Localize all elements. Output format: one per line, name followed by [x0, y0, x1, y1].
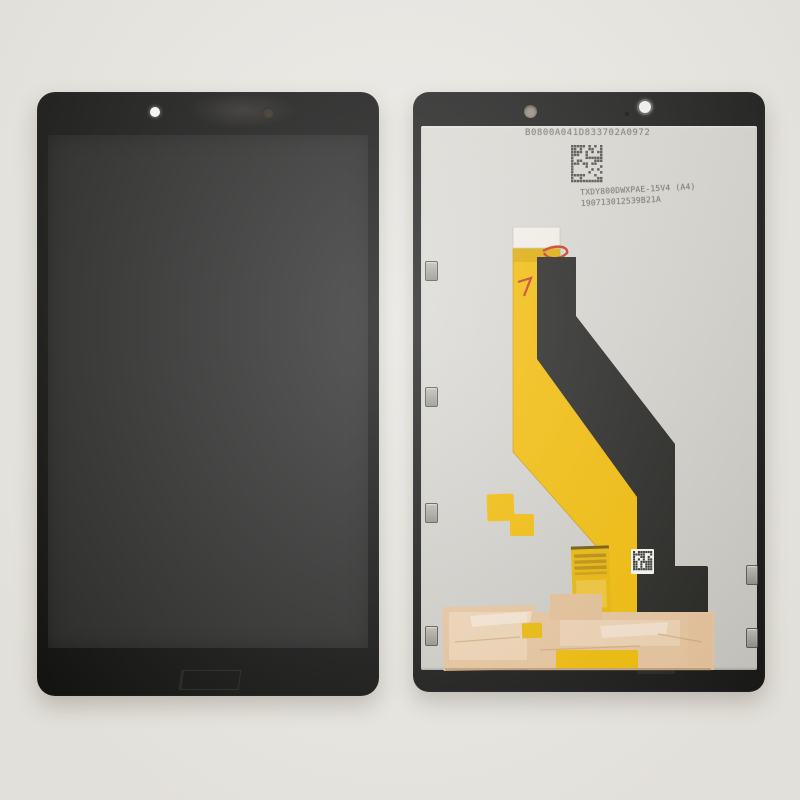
- product-photo: B0800A041D833702A0972 TXDY800DWXPAE-15V4…: [0, 0, 800, 800]
- bottom-connector-mark: [179, 670, 242, 690]
- frame-clip: [746, 565, 758, 585]
- serial-number-text: B0800A041D833702A0972: [525, 128, 650, 138]
- datamatrix-code-icon: [570, 144, 604, 184]
- frame-clip: [746, 628, 758, 648]
- proximity-sensor-hole: [263, 107, 274, 118]
- frame-clip: [425, 626, 438, 646]
- screw-hole-icon: [524, 105, 537, 118]
- front-screen: [48, 135, 368, 648]
- pinhole-icon: [625, 112, 629, 116]
- camera-ring-hole-icon: [637, 99, 653, 115]
- camera-glue-smudge: [187, 92, 297, 128]
- frame-clip: [425, 261, 438, 281]
- frame-clip: [425, 503, 438, 523]
- front-panel: [37, 92, 379, 696]
- back-panel: B0800A041D833702A0972 TXDY800DWXPAE-15V4…: [413, 92, 765, 692]
- front-camera-hole: [150, 107, 160, 117]
- frame-clip: [425, 387, 438, 407]
